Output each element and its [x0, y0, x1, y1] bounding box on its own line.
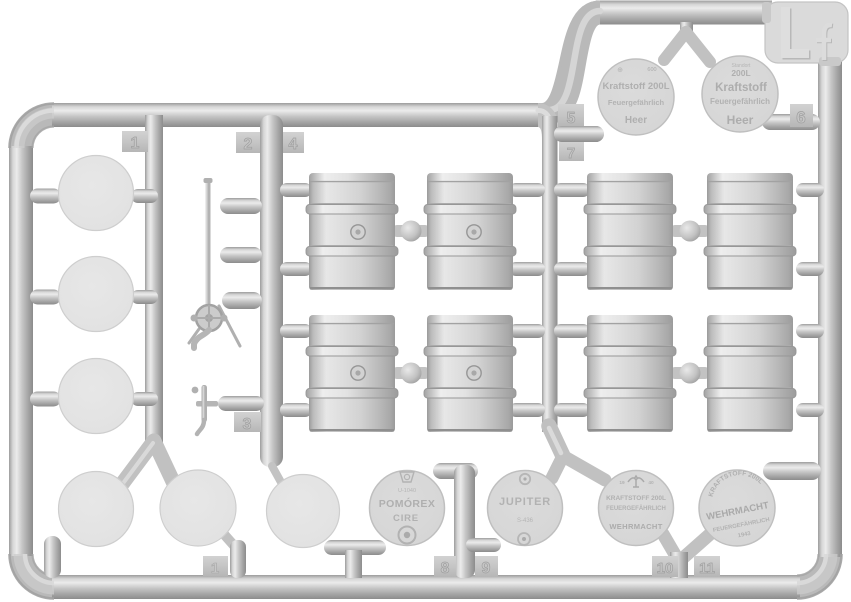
svg-text:19: 19 — [619, 480, 625, 486]
svg-text:200L: 200L — [731, 68, 750, 78]
svg-text:Feuergefährlich: Feuergefährlich — [710, 97, 770, 106]
svg-text:7: 7 — [567, 145, 575, 162]
svg-text:1: 1 — [211, 560, 219, 577]
svg-text:U-1040: U-1040 — [398, 488, 416, 494]
svg-text:Kraftstoff: Kraftstoff — [715, 82, 767, 94]
svg-text:10: 10 — [657, 560, 674, 577]
svg-text:2: 2 — [244, 136, 253, 153]
svg-text:⊕: ⊕ — [617, 67, 623, 74]
svg-text:Heer: Heer — [625, 115, 647, 126]
svg-text:POMÓREX: POMÓREX — [379, 497, 435, 510]
svg-text:Kraftstoff 200L: Kraftstoff 200L — [602, 81, 669, 92]
svg-text:4: 4 — [289, 136, 298, 153]
svg-text:FEUERGEFÄHRLICH: FEUERGEFÄHRLICH — [606, 505, 666, 512]
svg-text:S-436: S-436 — [517, 518, 534, 524]
svg-text:8: 8 — [441, 560, 450, 577]
svg-text:9: 9 — [482, 560, 491, 577]
svg-text:3: 3 — [243, 416, 252, 433]
svg-text:Feuergefährlich: Feuergefährlich — [608, 98, 665, 107]
svg-text:1: 1 — [131, 135, 140, 152]
svg-text:5: 5 — [567, 110, 576, 127]
svg-text:WEHRMACHT: WEHRMACHT — [609, 522, 662, 531]
svg-text:6: 6 — [796, 108, 805, 127]
svg-text:40: 40 — [648, 480, 654, 486]
svg-text:Heer: Heer — [727, 113, 754, 127]
svg-text:CIRE: CIRE — [393, 513, 419, 524]
svg-text:11: 11 — [699, 560, 715, 577]
svg-text:600: 600 — [647, 67, 656, 73]
svg-text:KRAFTSTOFF 200L: KRAFTSTOFF 200L — [606, 495, 666, 502]
svg-text:JUPITER: JUPITER — [499, 496, 551, 508]
